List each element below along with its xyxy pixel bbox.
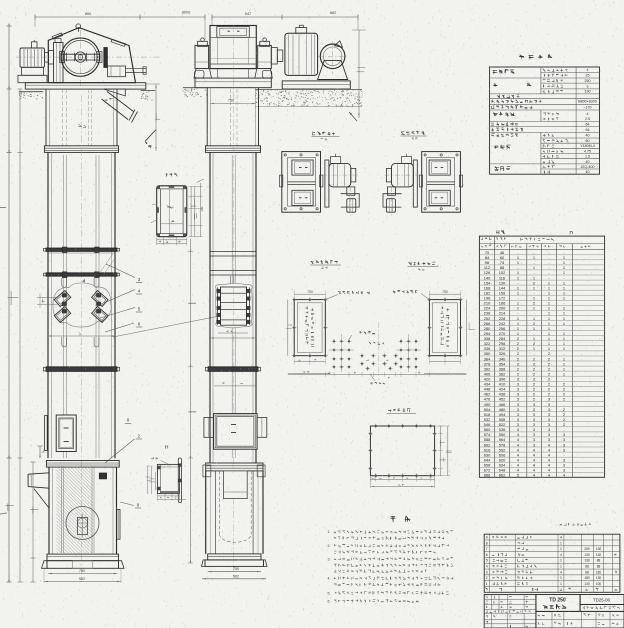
svg-text:88: 88 [597, 559, 601, 563]
svg-text:64: 64 [586, 128, 590, 132]
svg-text:130: 130 [584, 582, 590, 586]
svg-text:962: 962 [233, 574, 239, 578]
svg-text:180: 180 [584, 576, 590, 580]
svg-text:8: 8 [486, 541, 488, 545]
svg-text:~170: ~170 [583, 106, 591, 110]
svg-text:130: 130 [596, 553, 602, 557]
svg-text:5: 5 [486, 559, 488, 563]
svg-text:180: 180 [596, 570, 602, 574]
svg-text:662: 662 [499, 473, 506, 478]
svg-text:750: 750 [307, 290, 313, 294]
svg-text:750: 750 [233, 567, 239, 571]
svg-text:25: 25 [586, 74, 590, 78]
svg-text:882: 882 [330, 11, 336, 15]
svg-text:64: 64 [586, 123, 590, 127]
svg-text:4: 4 [560, 536, 562, 540]
svg-text:3: 3 [486, 570, 488, 574]
svg-text:88: 88 [585, 570, 589, 574]
svg-text:750: 750 [442, 290, 448, 294]
svg-text:1.: 1. [328, 530, 331, 534]
svg-text:5.: 5. [328, 591, 331, 595]
svg-text:4: 4 [560, 570, 562, 574]
svg-text:4.: 4. [328, 577, 331, 581]
svg-text:40: 40 [586, 170, 590, 174]
svg-text:3: 3 [587, 85, 589, 89]
svg-text:6.: 6. [328, 599, 331, 603]
svg-text:750: 750 [228, 99, 234, 103]
svg-text:1: 1 [560, 576, 562, 580]
svg-text:2.: 2. [328, 544, 331, 548]
svg-text:JZQ-400: JZQ-400 [581, 165, 595, 169]
svg-text:130: 130 [596, 547, 602, 551]
svg-text:TD25-00: TD25-00 [593, 598, 611, 603]
svg-text:Y180M-4: Y180M-4 [580, 144, 595, 148]
svg-text:88: 88 [585, 565, 589, 569]
svg-text:5: 5 [517, 473, 519, 478]
svg-text:4: 4 [486, 565, 488, 569]
svg-text:962: 962 [79, 577, 85, 581]
svg-text:88: 88 [597, 565, 601, 569]
svg-text:TD 250: TD 250 [549, 598, 566, 604]
svg-text:1: 1 [560, 559, 562, 563]
svg-text:1: 1 [486, 582, 488, 586]
svg-text:250: 250 [584, 547, 590, 551]
svg-text:250: 250 [585, 79, 591, 83]
svg-text:750: 750 [79, 569, 85, 573]
svg-text:1: 1 [560, 541, 562, 545]
svg-text:6: 6 [486, 553, 488, 557]
svg-text:1.5: 1.5 [585, 155, 590, 159]
svg-text:80: 80 [586, 139, 590, 143]
svg-text:686: 686 [484, 473, 491, 478]
svg-text:4: 4 [560, 553, 562, 557]
svg-text:130: 130 [596, 576, 602, 580]
svg-text:40: 40 [586, 134, 590, 138]
svg-text:B800×8300: B800×8300 [578, 100, 597, 104]
svg-text:130: 130 [584, 553, 590, 557]
svg-text:4: 4 [587, 112, 589, 116]
svg-text:190: 190 [585, 90, 591, 94]
svg-text:1: 1 [560, 547, 562, 551]
svg-text:1: 1 [560, 565, 562, 569]
svg-text:647: 647 [245, 12, 251, 16]
svg-text:100: 100 [596, 582, 602, 586]
svg-text:4: 4 [587, 68, 589, 72]
svg-text:2: 2 [486, 576, 488, 580]
svg-text:860: 860 [85, 12, 91, 16]
svg-text:9: 9 [486, 536, 488, 540]
svg-text:40: 40 [586, 160, 590, 164]
svg-text:1: 1 [560, 582, 562, 586]
